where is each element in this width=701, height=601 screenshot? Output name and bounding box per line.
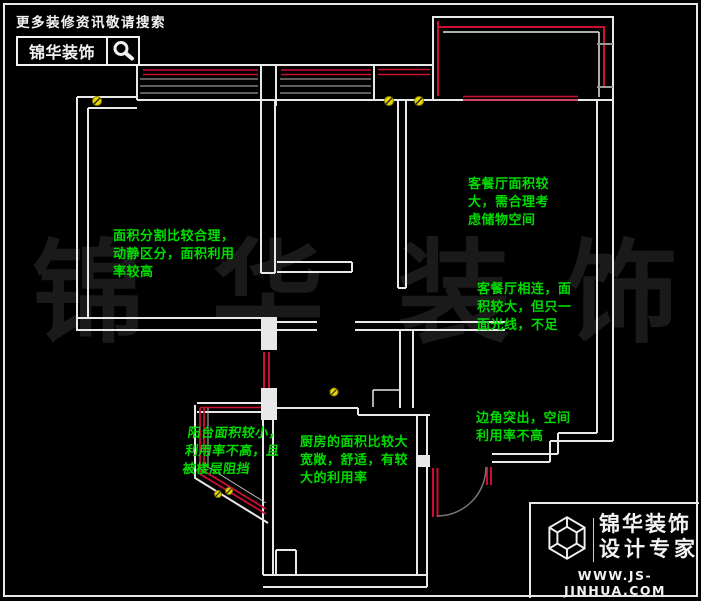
- note-line: 面光线，不足: [477, 317, 572, 335]
- search-icon: [108, 39, 138, 63]
- note-line: 利用率不高，且: [184, 443, 281, 461]
- cube-logo-icon: [543, 514, 591, 566]
- note-kitchen: 厨房的面积比较大 宽敞，舒适，有较 大的利用率: [300, 434, 408, 488]
- door-swing-arc: [437, 467, 486, 516]
- brand-website: WWW.JS-JINHUA.COM: [531, 568, 699, 598]
- screw-icon: [215, 491, 222, 498]
- note-living-top: 客餐厅面积较 大，需合理考 虑储物空间: [468, 176, 549, 230]
- note-line: 厨房的面积比较大: [300, 434, 408, 452]
- note-line: 大的利用率: [300, 470, 408, 488]
- top-window-glass-lines: [140, 79, 371, 93]
- note-corner: 边角突出，空间 利用率不高: [476, 410, 571, 446]
- entry-door: [417, 455, 491, 517]
- note-line: 被楼层阻挡: [181, 461, 278, 479]
- note-line: 边角突出，空间: [476, 410, 571, 428]
- brand-name: 锦华装饰: [18, 39, 106, 63]
- screw-icon: [330, 388, 338, 396]
- search-banner: 更多装修资讯敬请搜索 锦华装饰: [16, 11, 166, 66]
- duct-box: [373, 390, 400, 407]
- note-line: 积较大，但只一: [477, 299, 572, 317]
- bathroom-door-frame-red: [264, 352, 269, 388]
- balcony-top-right: [433, 17, 613, 100]
- screw-icon: [93, 97, 102, 106]
- note-line: 大，需合理考: [468, 194, 549, 212]
- top-window-red-lines: [143, 70, 430, 75]
- divider: [593, 518, 594, 562]
- note-line: 动静区分，面积利用: [113, 246, 235, 264]
- note-line: 率较高: [113, 264, 235, 282]
- bathroom-walls: [261, 318, 400, 420]
- bedroom-left-walls: [77, 97, 277, 331]
- note-living-mid: 客餐厅相连，面 积较大，但只一 面光线，不足: [477, 281, 572, 335]
- note-line: 虑储物空间: [468, 212, 549, 230]
- note-line: 利用率不高: [476, 428, 571, 446]
- note-bedroom-left: 面积分割比较合理， 动静区分，面积利用 率较高: [113, 228, 235, 282]
- screw-icon: [415, 97, 424, 106]
- brand-slogan: 设计专家: [599, 537, 699, 562]
- screw-icon: [385, 97, 394, 106]
- screw-icon: [226, 488, 233, 495]
- brand-footer-block: 锦华装饰 设计专家 WWW.JS-JINHUA.COM: [529, 502, 699, 598]
- note-line: 宽敞，舒适，有较: [300, 452, 408, 470]
- note-line: 客餐厅面积较: [468, 176, 549, 194]
- balcony-window-sill-red: [463, 97, 578, 101]
- note-line: 面积分割比较合理，: [113, 228, 235, 246]
- brand-name: 锦华装饰: [599, 512, 699, 537]
- note-line: 客餐厅相连，面: [477, 281, 572, 299]
- floor-plan-page: 锦 华 装 饰: [0, 0, 701, 601]
- note-line: 阳台面积较小，: [186, 425, 283, 443]
- search-tagline: 更多装修资讯敬请搜索: [16, 11, 166, 31]
- brand-search-box: 锦华装饰: [16, 36, 140, 66]
- note-balcony: 阳台面积较小， 利用率不高，且 被楼层阻挡: [181, 425, 283, 479]
- hallway-walls: [273, 100, 505, 408]
